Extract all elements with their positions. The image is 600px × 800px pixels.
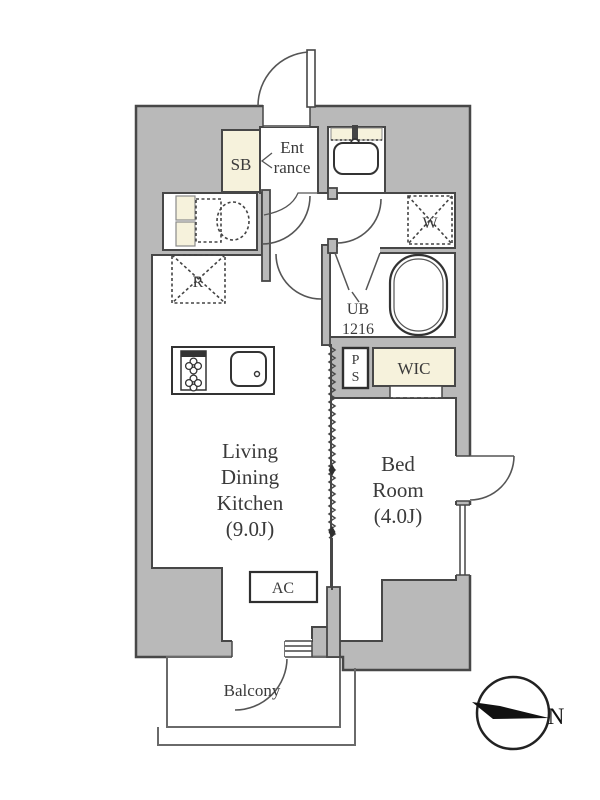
washroom-doorway	[327, 199, 338, 239]
ldk-label-line3: Kitchen	[217, 491, 284, 515]
entrance-door-leaf	[307, 50, 315, 107]
bedroom-window	[455, 505, 472, 575]
shoe-box-label: SB	[231, 155, 252, 174]
bedroom-label-line1: Bed	[381, 452, 415, 476]
entrance-door-arc	[258, 52, 308, 106]
floor-plan-page: SB Ent rance W R UB 1216 P S WIC Living …	[0, 0, 600, 800]
entrance-label-line2: rance	[274, 158, 311, 177]
compass-needle	[472, 702, 549, 719]
washer-space-label: W	[422, 215, 438, 232]
washbasin-bowl	[334, 143, 378, 174]
floor-plan-svg: SB Ent rance W R UB 1216 P S WIC Living …	[0, 0, 600, 800]
balcony-window	[285, 639, 312, 659]
bath-doorway	[336, 247, 380, 254]
compass-north-label: N	[548, 704, 565, 729]
wic-label: WIC	[397, 359, 430, 378]
ldk-label-line2: Dining	[221, 465, 280, 489]
kitchen-counter	[172, 347, 274, 394]
compass	[472, 677, 549, 749]
kitchen-sink	[231, 352, 266, 386]
refrigerator-space-label: R	[193, 274, 204, 291]
balcony-label: Balcony	[224, 681, 281, 700]
ldk-label-line1: Living	[222, 439, 278, 463]
balcony-doorway	[232, 639, 285, 659]
bedroom-label-line3: (4.0J)	[374, 504, 422, 528]
bedroom-doorway	[455, 456, 472, 501]
wic-door-panel	[390, 386, 442, 398]
bedroom-label-line2: Room	[372, 478, 423, 502]
pipe-space-label-line1: P	[352, 353, 360, 368]
pipe-space-label-line2: S	[352, 370, 360, 385]
entrance-label-line1: Ent	[280, 138, 304, 157]
unit-bath-label-line2: 1216	[342, 321, 374, 338]
bathtub	[390, 255, 447, 335]
ldk-label-line4: (9.0J)	[226, 517, 274, 541]
ac-label: AC	[272, 580, 294, 597]
entrance-doorway	[263, 104, 310, 127]
bedroom-door-arc	[470, 456, 514, 500]
unit-bath-label-line1: UB	[347, 301, 369, 318]
